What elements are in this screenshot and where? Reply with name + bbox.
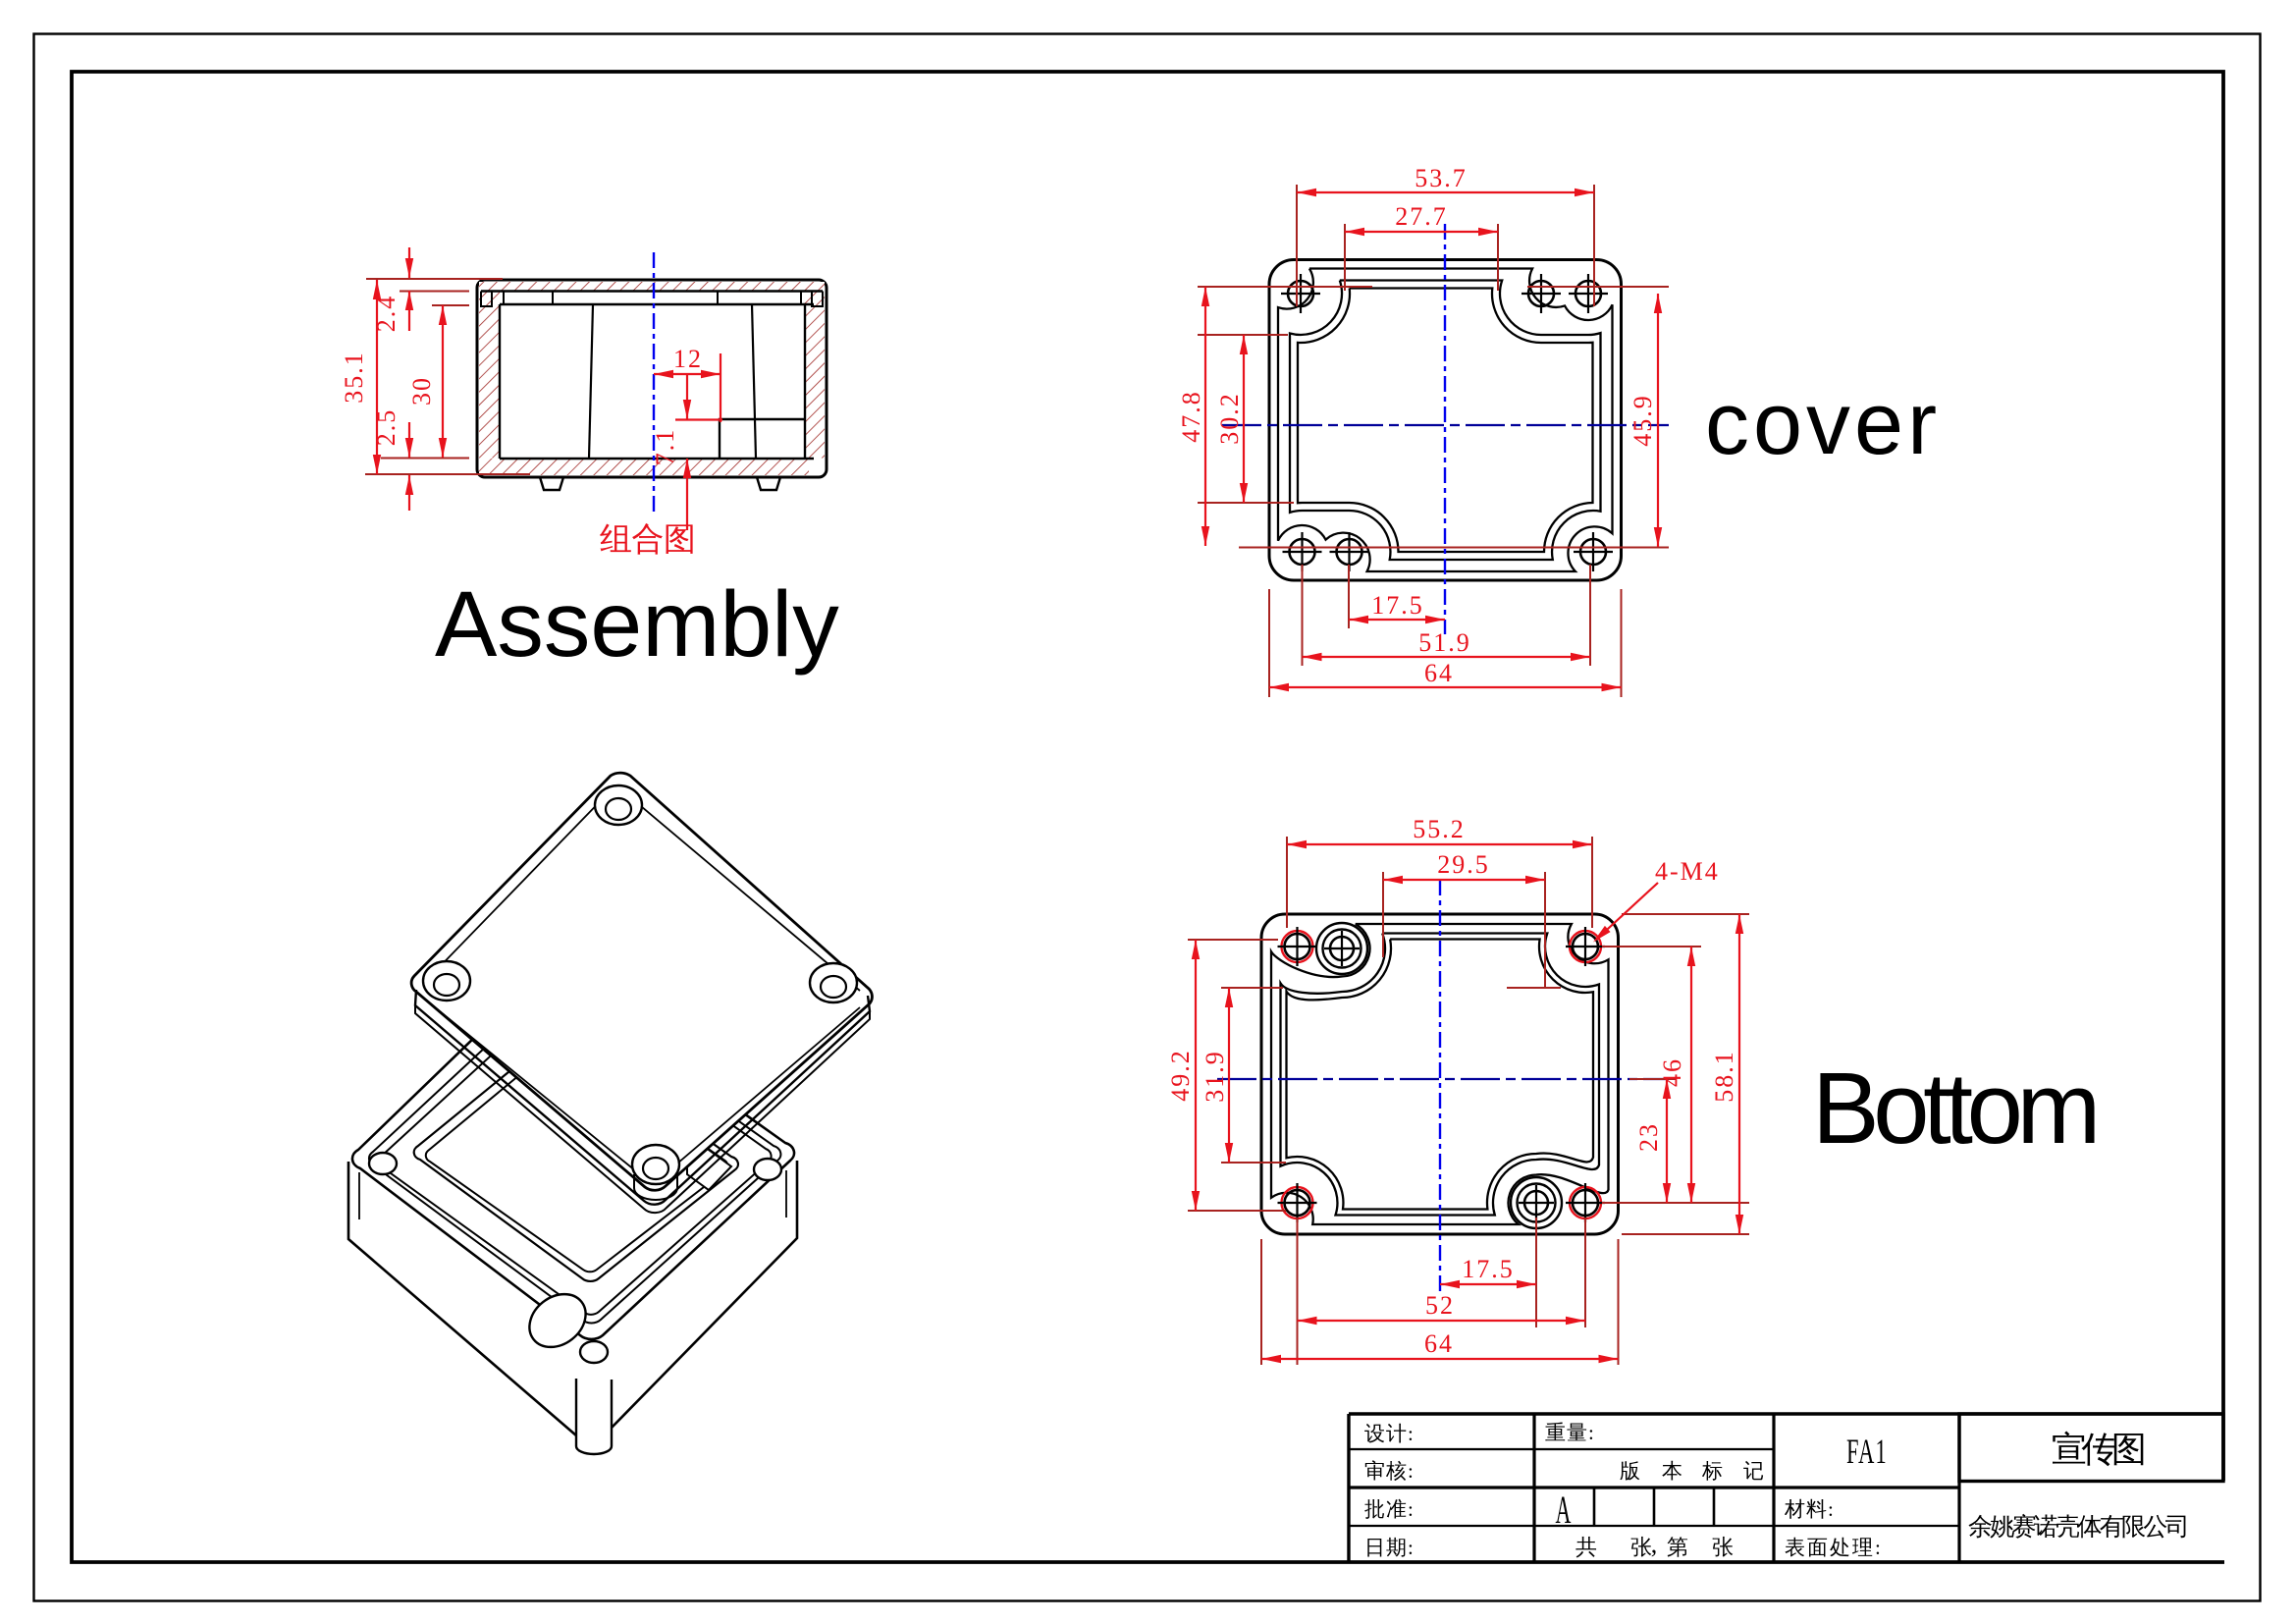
svg-text:17.5: 17.5 [1462,1255,1515,1283]
svg-text:27.7: 27.7 [1395,202,1448,231]
svg-text:46: 46 [1658,1057,1686,1087]
svg-text:49.2: 49.2 [1166,1049,1195,1102]
svg-text:Bottom: Bottom [1812,1052,2096,1164]
svg-text:2.4: 2.4 [372,295,400,333]
svg-text:12: 12 [673,345,703,373]
svg-text:cover: cover [1705,375,1941,473]
svg-text:30: 30 [407,376,436,406]
svg-text:51.9: 51.9 [1418,628,1471,657]
svg-text:47.8: 47.8 [1177,390,1205,443]
svg-text:30.2: 30.2 [1215,392,1244,445]
svg-text::: : [1588,1421,1594,1444]
svg-text::: : [1408,1459,1414,1483]
svg-text:23: 23 [1634,1122,1663,1152]
svg-text:58.1: 58.1 [1710,1050,1738,1103]
svg-text:64: 64 [1424,1329,1454,1358]
svg-text:,: , [1651,1530,1660,1558]
svg-text::: : [1875,1536,1881,1559]
svg-text::: : [1828,1497,1834,1521]
svg-text:64: 64 [1424,659,1454,687]
svg-text:2.5: 2.5 [372,408,400,447]
svg-text:55.2: 55.2 [1413,815,1466,843]
svg-text:45.9: 45.9 [1629,394,1657,447]
svg-text:29.5: 29.5 [1437,850,1490,879]
svg-text:53.7: 53.7 [1415,164,1468,192]
svg-text:31.9: 31.9 [1201,1050,1229,1103]
svg-text:52: 52 [1425,1291,1455,1320]
svg-text:17.5: 17.5 [1371,591,1424,620]
svg-text:4-M4: 4-M4 [1655,857,1720,886]
svg-text:7.1: 7.1 [651,428,679,466]
svg-text:35.1: 35.1 [340,351,368,404]
svg-text:A: A [1556,1488,1573,1532]
svg-text:Assembly: Assembly [435,572,839,677]
svg-text::: : [1408,1497,1414,1521]
svg-text::: : [1408,1536,1414,1559]
svg-text:FA1: FA1 [1846,1432,1888,1471]
svg-text::: : [1408,1422,1414,1445]
